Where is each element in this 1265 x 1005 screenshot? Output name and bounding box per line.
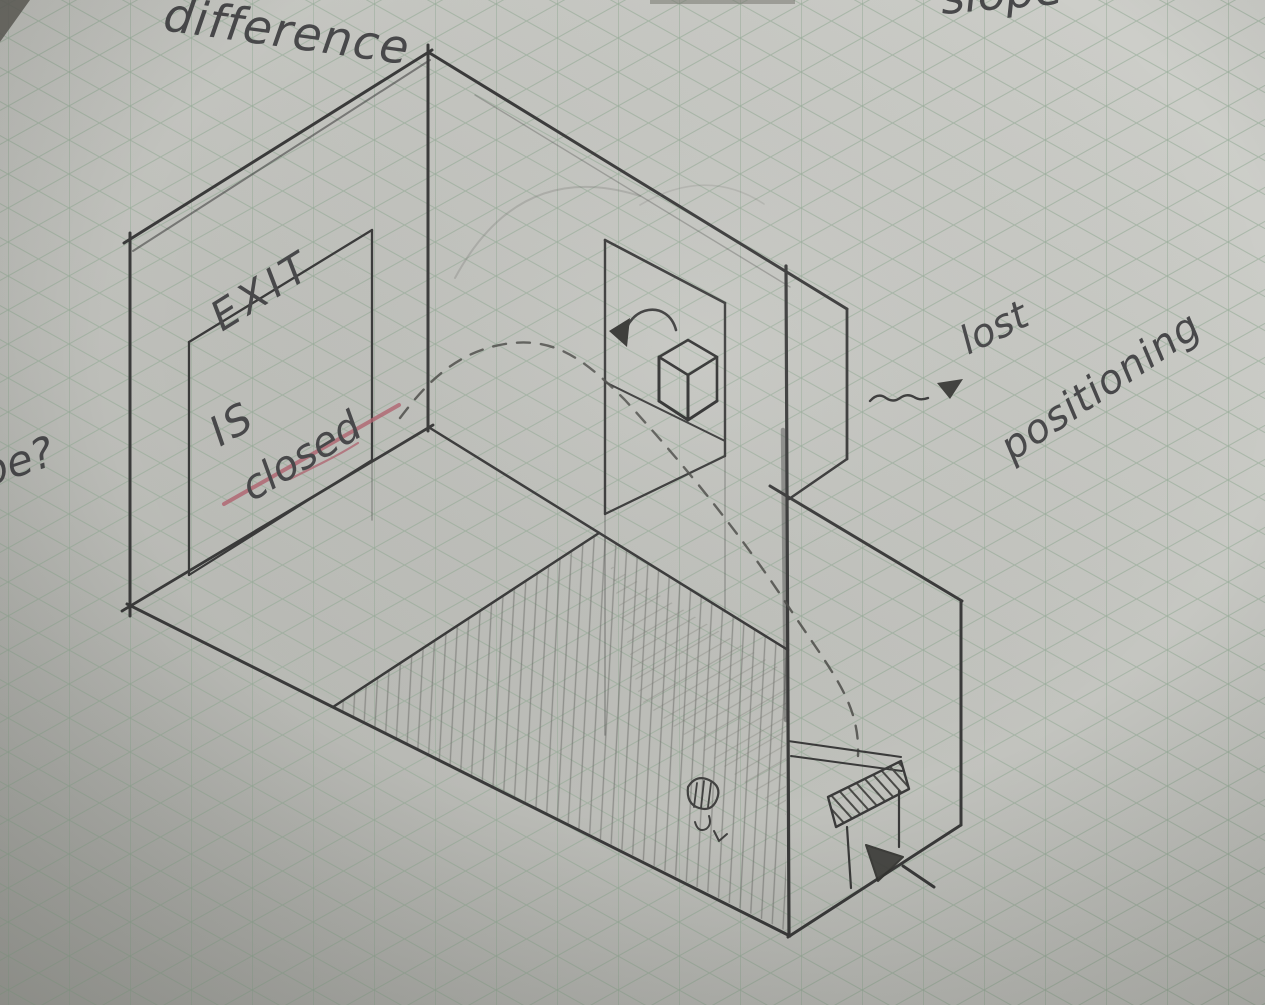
sketch-canvas: difference slope EXIT IS closed lost pos…: [0, 0, 1265, 1005]
paper-edge-shadow: [650, 0, 795, 4]
photo-of-sketch: difference slope EXIT IS closed lost pos…: [0, 0, 1265, 1005]
